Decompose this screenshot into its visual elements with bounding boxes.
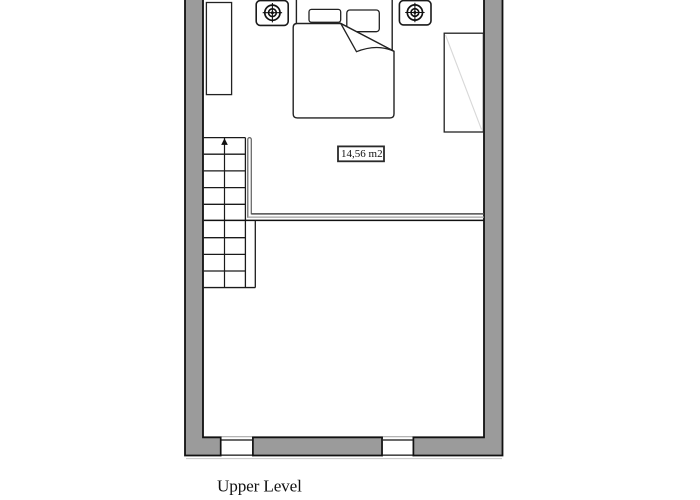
svg-text:Upper Level: Upper Level: [217, 476, 302, 495]
svg-text:14,56 m2: 14,56 m2: [341, 148, 383, 160]
